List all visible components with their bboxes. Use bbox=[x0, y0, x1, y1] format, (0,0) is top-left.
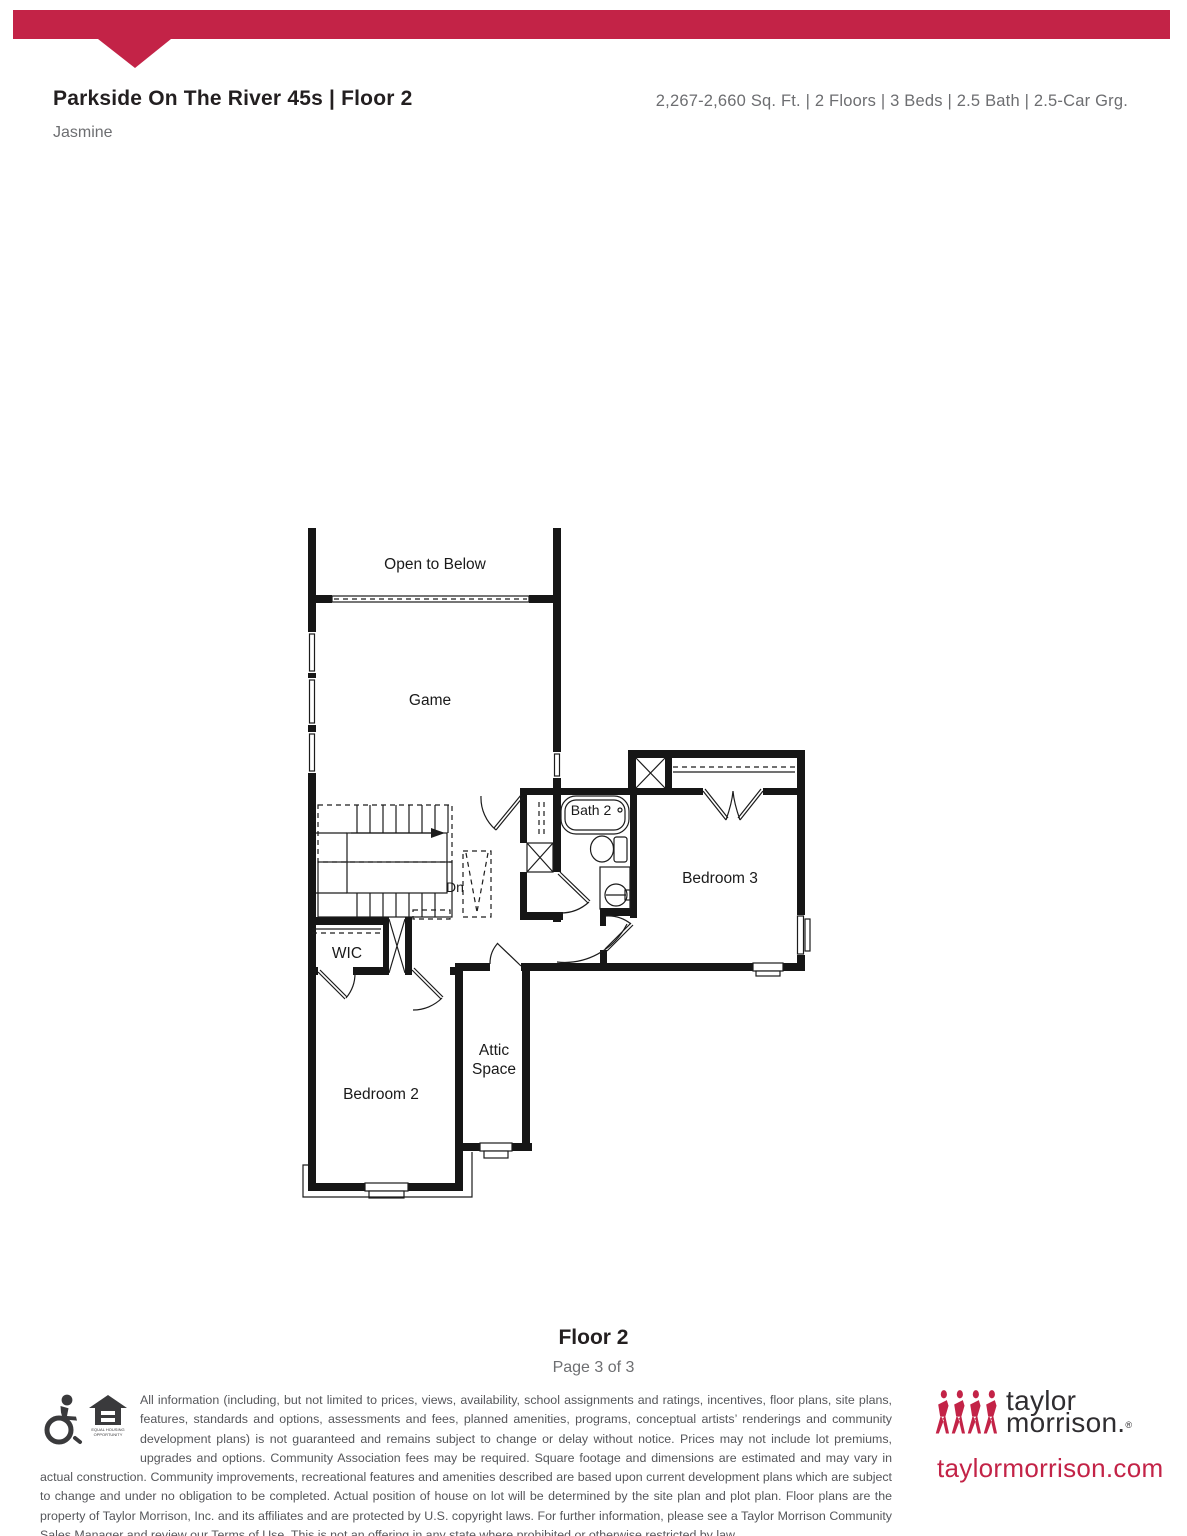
walking-figures-icon bbox=[935, 1390, 999, 1436]
disclaimer-text: All information (including, but not limi… bbox=[40, 1393, 892, 1536]
room-label-bath2: Bath 2 bbox=[571, 802, 612, 818]
toilet-icon bbox=[591, 836, 628, 862]
room-label-bedroom2: Bedroom 2 bbox=[343, 1086, 419, 1103]
brand-line-2: morrison.® bbox=[1006, 1412, 1132, 1436]
sink-icon bbox=[600, 867, 630, 909]
accessibility-icon bbox=[40, 1393, 84, 1447]
home-specs: 2,267-2,660 Sq. Ft. | 2 Floors | 3 Beds … bbox=[656, 92, 1128, 111]
equal-housing-caption-2: OPPORTUNITY bbox=[94, 1432, 123, 1437]
taylor-morrison-logo: taylor morrison.® bbox=[935, 1390, 1165, 1436]
doors-layer bbox=[318, 789, 763, 1010]
footer-icons: EQUAL HOUSING OPPORTUNITY bbox=[40, 1393, 136, 1450]
brand-top-bar bbox=[13, 10, 1170, 39]
room-label-open-to-below: Open to Below bbox=[384, 556, 486, 573]
floorplan-page: Parkside On The River 45s | Floor 2 2,26… bbox=[0, 0, 1187, 1536]
room-label-game: Game bbox=[409, 692, 451, 709]
website-link[interactable]: taylormorrison.com bbox=[937, 1453, 1163, 1484]
room-label-attic-1: Attic bbox=[479, 1042, 509, 1059]
equal-housing-icon: EQUAL HOUSING OPPORTUNITY bbox=[87, 1393, 129, 1447]
room-label-bedroom3: Bedroom 3 bbox=[682, 870, 758, 887]
floor-plan: Open to Below Game Dn WIC Bath 2 Bedroom… bbox=[295, 520, 815, 1210]
room-label-wic: WIC bbox=[332, 945, 362, 962]
brand-wordmark: taylor morrison.® bbox=[1006, 1390, 1132, 1436]
room-label-attic-2: Space bbox=[472, 1061, 516, 1078]
floor-label: Floor 2 bbox=[0, 1326, 1187, 1350]
page-title: Parkside On The River 45s | Floor 2 bbox=[53, 87, 413, 111]
brand-top-bar-notch bbox=[98, 39, 171, 68]
staircase bbox=[316, 805, 452, 919]
registered-mark: ® bbox=[1125, 1420, 1132, 1430]
plan-name: Jasmine bbox=[53, 124, 113, 142]
stairs-direction-label: Dn bbox=[446, 879, 464, 895]
page-number: Page 3 of 3 bbox=[0, 1359, 1187, 1377]
attic-access-symbol bbox=[463, 851, 491, 917]
legal-disclaimer: EQUAL HOUSING OPPORTUNITY All informatio… bbox=[40, 1391, 892, 1536]
floor-plan-drawing: Open to Below Game Dn WIC Bath 2 Bedroom… bbox=[295, 520, 815, 1210]
